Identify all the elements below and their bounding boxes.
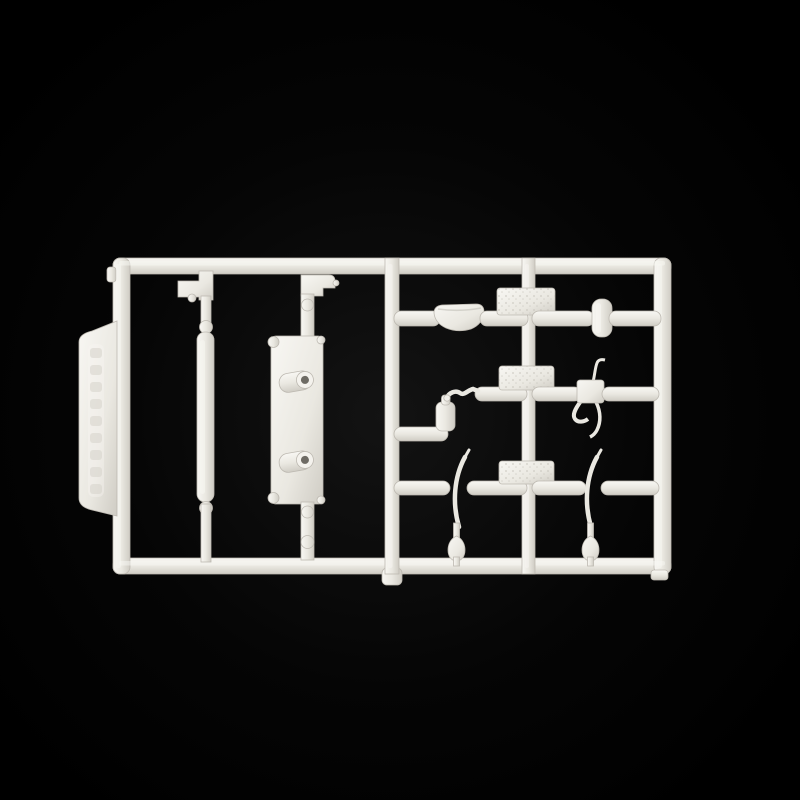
runner-segment bbox=[394, 481, 450, 495]
runner-stub bbox=[201, 296, 211, 324]
embossed-lettering bbox=[90, 348, 102, 494]
runner-stub bbox=[201, 504, 211, 562]
bracket-nub bbox=[333, 280, 339, 286]
plate-corner-lug bbox=[268, 337, 279, 348]
sprue-photograph: rectangular runner frame embossed label … bbox=[0, 0, 800, 800]
runner-segment bbox=[602, 387, 659, 401]
gate-bulge bbox=[302, 299, 314, 311]
lever-block bbox=[577, 380, 604, 403]
runner-segment bbox=[601, 481, 659, 495]
junction-pad-texture bbox=[499, 461, 554, 484]
junction-pad-texture bbox=[499, 366, 554, 390]
runner-segment bbox=[609, 311, 661, 326]
frame-right-rail bbox=[654, 258, 671, 574]
gate-bulge bbox=[188, 294, 196, 302]
canister-body bbox=[436, 402, 455, 431]
disc-highlight bbox=[596, 303, 601, 333]
frame-corner-flash-2 bbox=[651, 570, 668, 580]
part-side-plate bbox=[271, 336, 323, 504]
part-long-rod bbox=[197, 332, 214, 502]
embossed-label-tab: embossed label tab (lettering illegible) bbox=[79, 321, 117, 516]
gate-bulge bbox=[302, 506, 314, 518]
gate-bulge bbox=[301, 536, 314, 549]
runner-segment bbox=[532, 387, 581, 401]
runner-segment bbox=[532, 481, 586, 495]
right-rail-highlight bbox=[657, 264, 662, 568]
gate-bulge bbox=[200, 321, 213, 334]
rod-highlight bbox=[200, 340, 205, 494]
frame-corner-flash bbox=[107, 267, 116, 282]
plate-corner-lug bbox=[268, 493, 279, 504]
canister-cap bbox=[444, 395, 450, 401]
runner-segment bbox=[394, 311, 440, 326]
sprue-photo-canvas: rectangular runner frame embossed label … bbox=[0, 0, 800, 800]
plate-corner-lug bbox=[317, 336, 325, 344]
knob-stem bbox=[454, 557, 460, 566]
plate-corner-lug bbox=[317, 496, 325, 504]
runner-center-highlight bbox=[388, 264, 393, 568]
runner-segment bbox=[532, 311, 594, 326]
knob-stem bbox=[588, 557, 594, 566]
